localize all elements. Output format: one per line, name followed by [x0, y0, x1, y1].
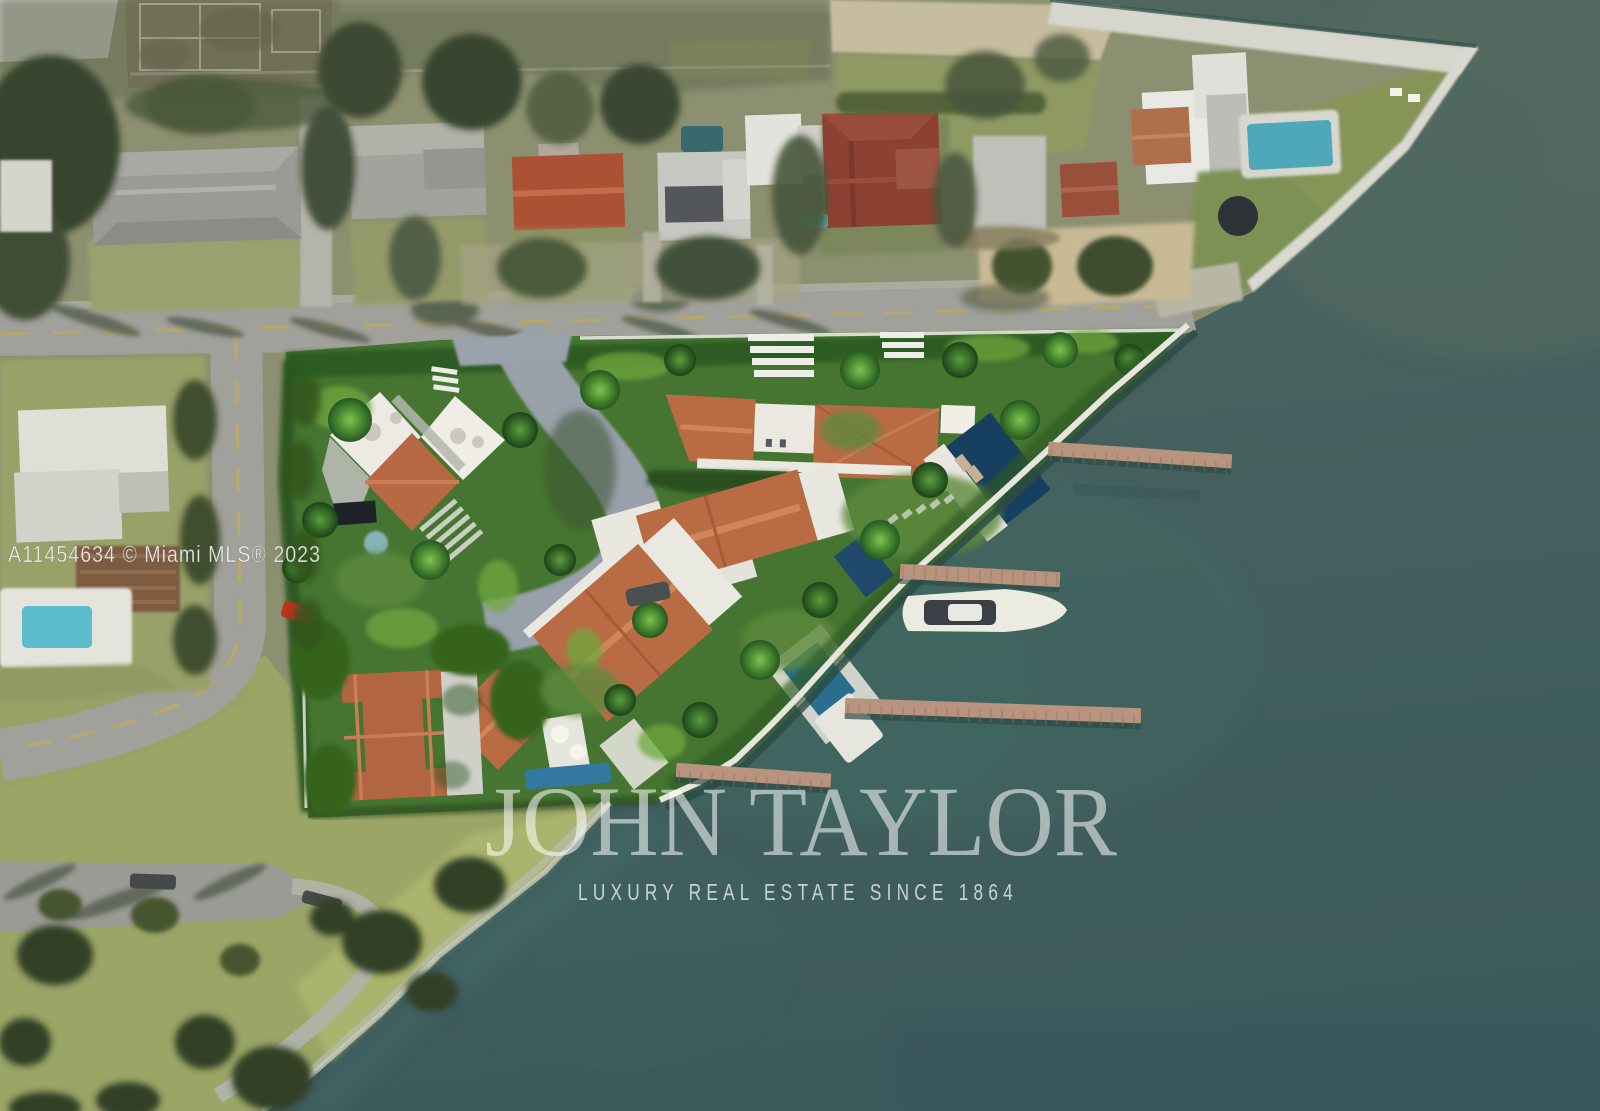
svg-text:JOHN TAYLOR: JOHN TAYLOR: [485, 766, 1117, 877]
svg-text:LUXURY REAL ESTATE SINCE 1864: LUXURY REAL ESTATE SINCE 1864: [578, 879, 1018, 905]
svg-text:A11454634 © Miami MLS® 2023: A11454634 © Miami MLS® 2023: [8, 541, 321, 567]
